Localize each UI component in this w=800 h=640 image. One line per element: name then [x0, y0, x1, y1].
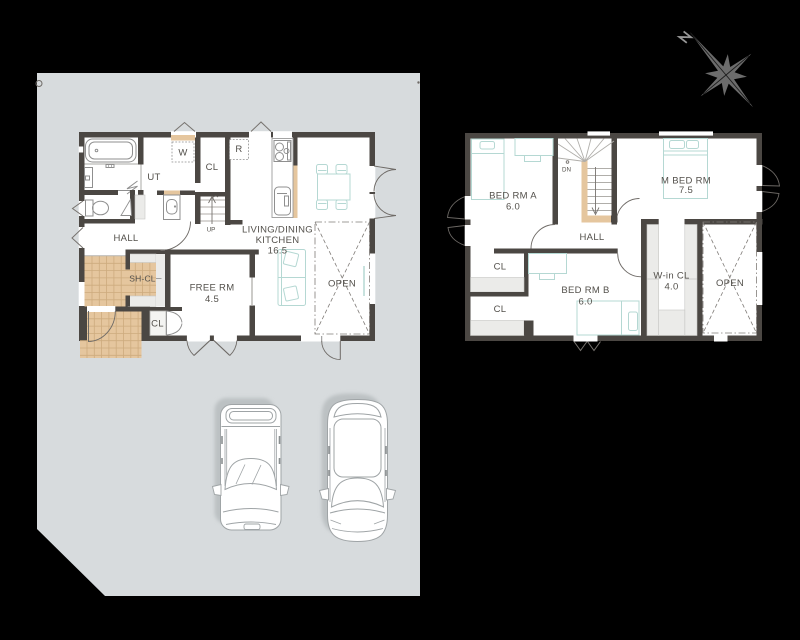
svg-text:4.0: 4.0	[664, 282, 678, 293]
svg-text:R: R	[235, 144, 242, 155]
svg-text:CL: CL	[206, 162, 219, 173]
svg-text:16.5: 16.5	[268, 246, 288, 257]
svg-text:HALL: HALL	[580, 232, 605, 243]
svg-text:OPEN: OPEN	[328, 279, 356, 290]
svg-text:FREE RM: FREE RM	[190, 283, 235, 294]
svg-text:CL: CL	[494, 304, 507, 315]
svg-text:BED RM B: BED RM B	[561, 285, 609, 296]
svg-text:HALL: HALL	[114, 233, 139, 244]
svg-text:4.5: 4.5	[205, 294, 219, 305]
svg-text:W-in CL: W-in CL	[653, 271, 689, 282]
svg-text:6.0: 6.0	[506, 202, 520, 213]
svg-text:CL: CL	[151, 319, 164, 330]
svg-text:7.5: 7.5	[679, 185, 693, 196]
svg-text:W: W	[178, 148, 187, 159]
svg-text:KITCHEN: KITCHEN	[256, 235, 300, 246]
svg-text:DN: DN	[562, 167, 571, 174]
svg-text:UT: UT	[147, 172, 160, 183]
svg-text:CL: CL	[494, 262, 507, 273]
svg-text:OPEN: OPEN	[716, 278, 744, 289]
svg-text:LIVING/DINING: LIVING/DINING	[242, 225, 313, 236]
svg-text:6.0: 6.0	[578, 297, 592, 308]
svg-text:UP: UP	[207, 227, 216, 234]
svg-text:SH-CL: SH-CL	[129, 274, 156, 284]
svg-text:BED RM A: BED RM A	[489, 191, 537, 202]
